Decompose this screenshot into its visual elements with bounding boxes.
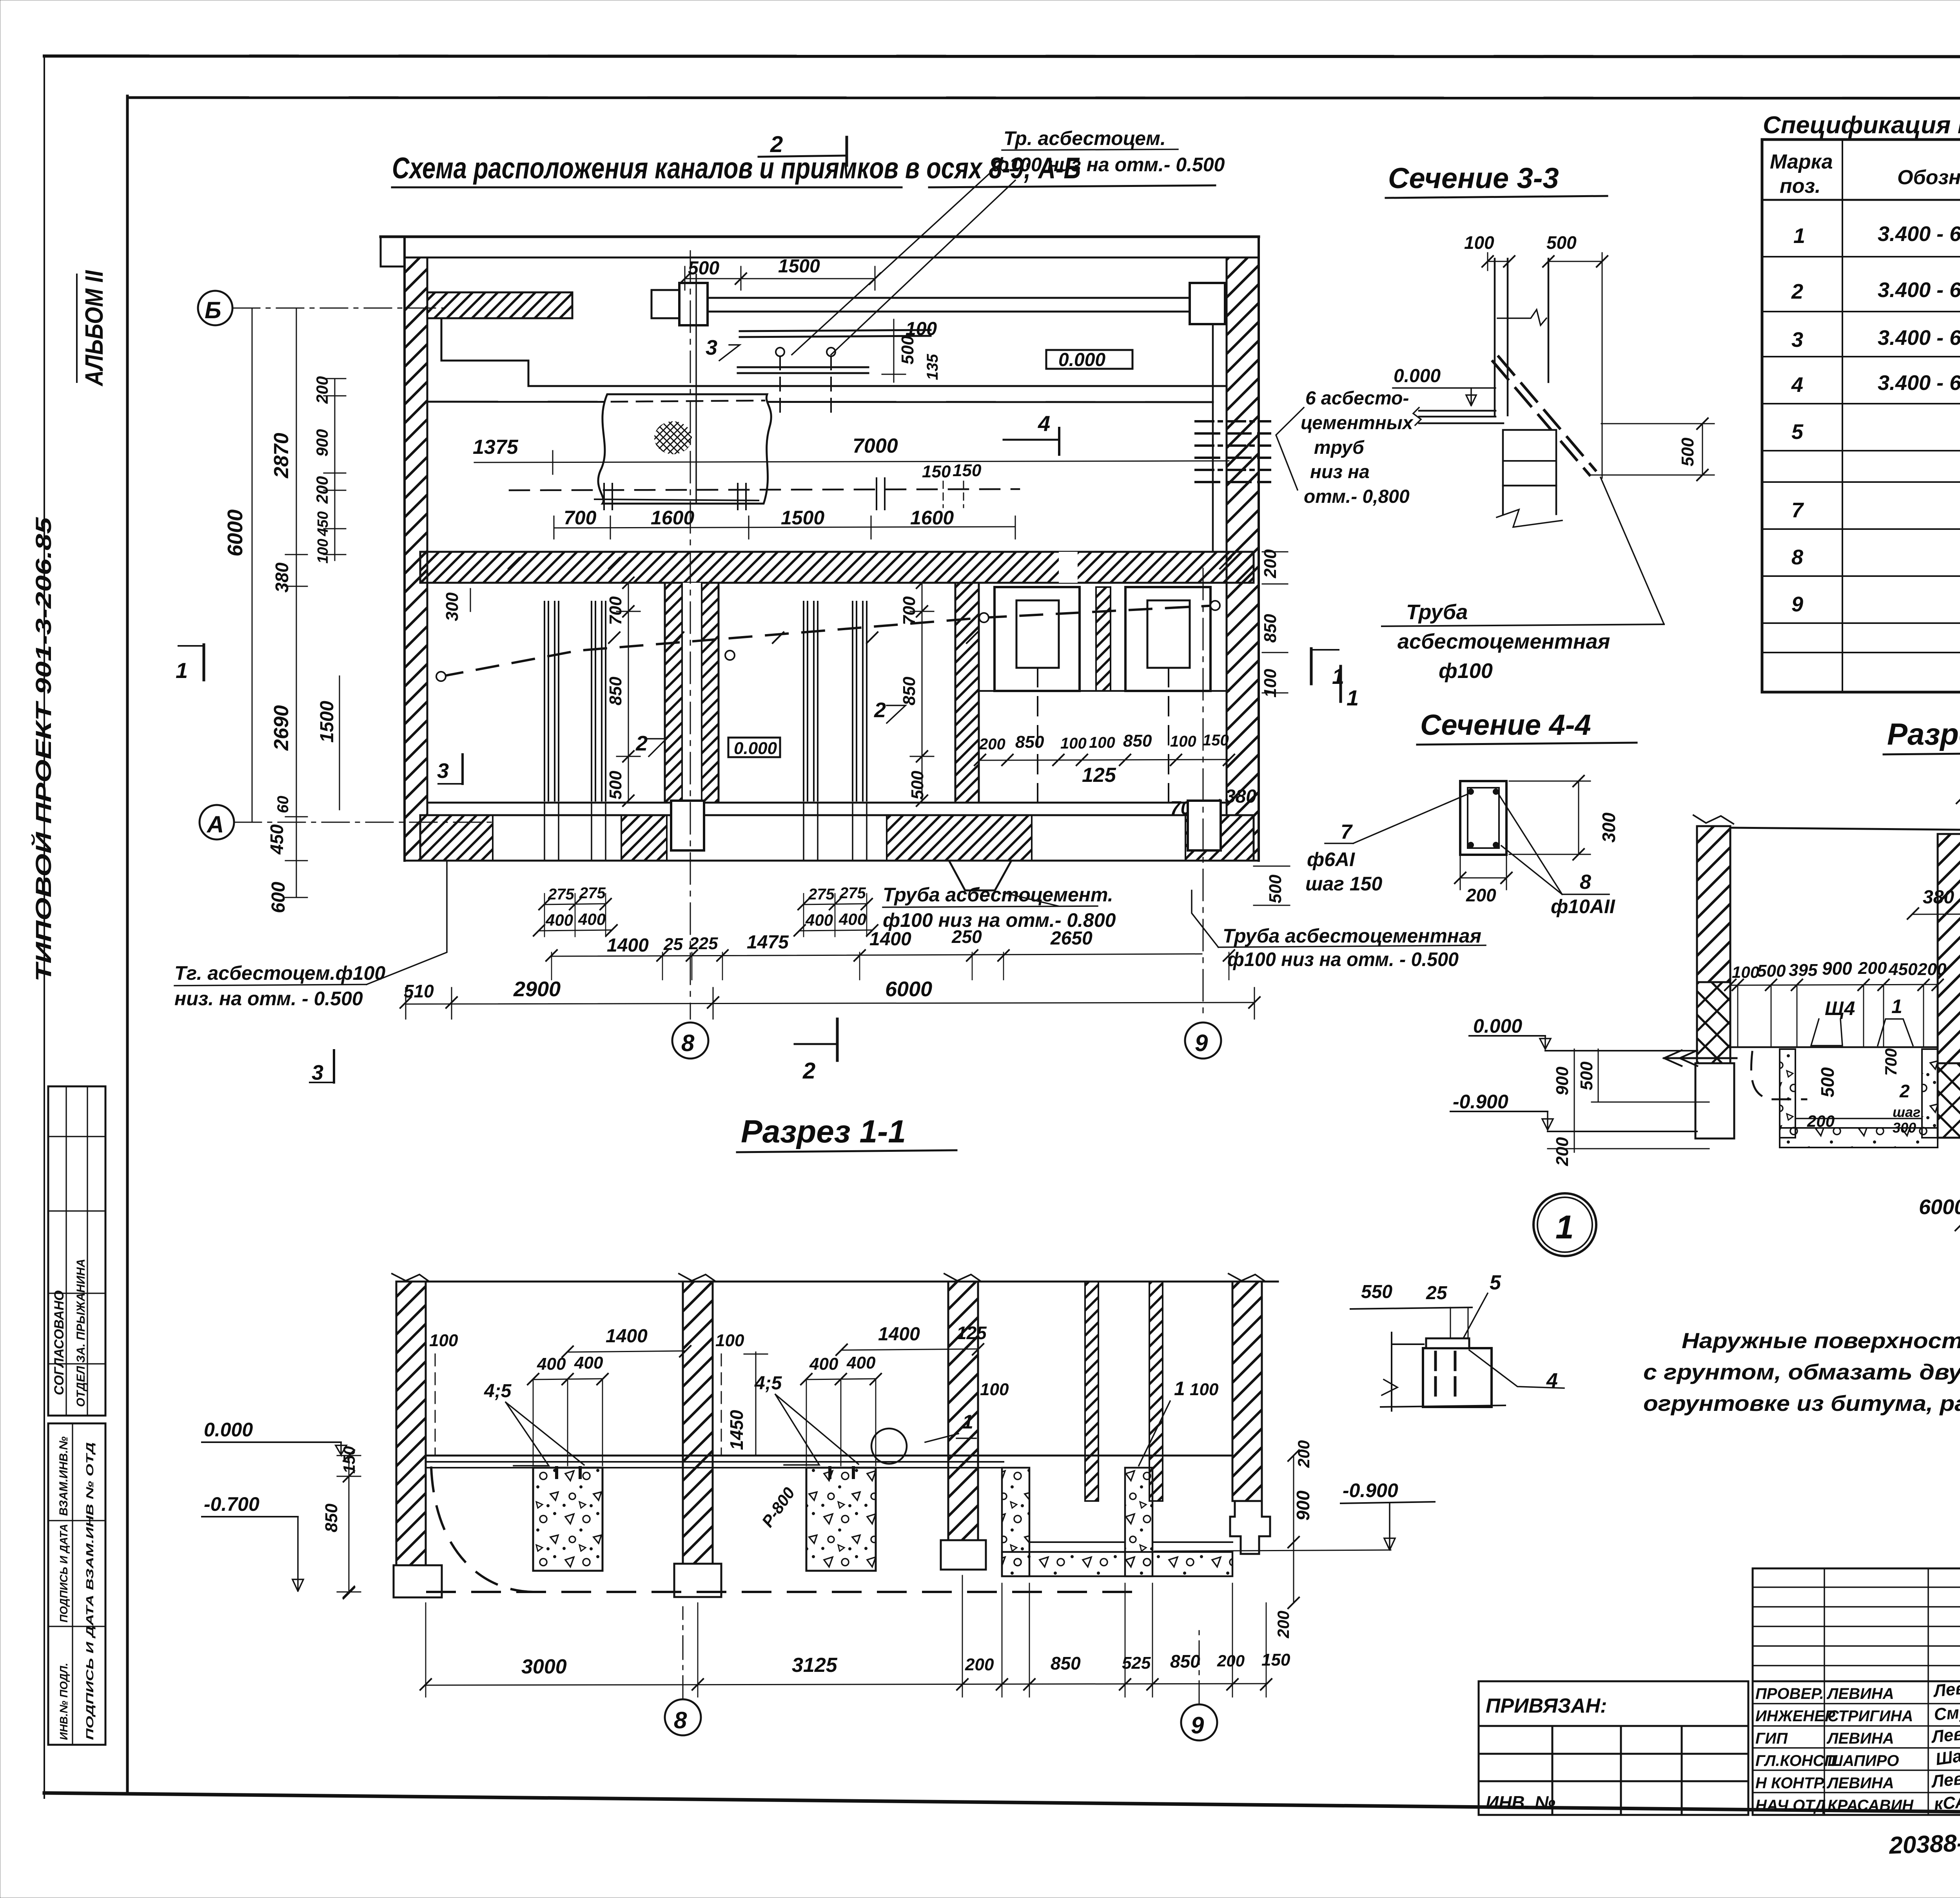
svg-text:200: 200 <box>1807 1112 1835 1130</box>
svg-text:1600: 1600 <box>910 507 954 529</box>
svg-text:200: 200 <box>1261 549 1280 578</box>
svg-text:2: 2 <box>770 132 783 157</box>
svg-text:ЛЕВИНА: ЛЕВИНА <box>1826 1730 1894 1747</box>
svg-text:Труба: Труба <box>1406 600 1468 624</box>
svg-text:200: 200 <box>1217 1651 1245 1670</box>
svg-text:1375: 1375 <box>473 436 519 459</box>
svg-text:150: 150 <box>953 461 982 480</box>
svg-text:200: 200 <box>313 476 331 504</box>
svg-text:3.400 - 6/76: 3.400 - 6/76 <box>1878 278 1960 302</box>
svg-text:ф100 низ на отм.- 0.800: ф100 низ на отм.- 0.800 <box>883 909 1116 931</box>
svg-text:1: 1 <box>962 1411 973 1433</box>
svg-text:6000: 6000 <box>223 509 247 557</box>
svg-text:7: 7 <box>1791 499 1804 522</box>
svg-text:-0.900: -0.900 <box>1453 1091 1508 1113</box>
svg-text:3.400 - 6/76: 3.400 - 6/76 <box>1878 371 1960 395</box>
svg-text:300: 300 <box>443 592 462 621</box>
svg-text:400: 400 <box>545 911 573 929</box>
svg-text:225: 225 <box>689 934 718 953</box>
svg-text:ОТДЕЛ ЗА. ПРЫЖАНИНА: ОТДЕЛ ЗА. ПРЫЖАНИНА <box>74 1259 87 1407</box>
svg-text:7000: 7000 <box>853 435 898 457</box>
svg-text:5: 5 <box>1490 1271 1501 1294</box>
svg-text:1500: 1500 <box>317 701 338 743</box>
svg-text:400: 400 <box>805 911 833 929</box>
svg-text:850: 850 <box>322 1503 341 1532</box>
svg-text:150: 150 <box>1261 1650 1290 1670</box>
svg-text:100: 100 <box>1170 733 1196 750</box>
svg-text:2690: 2690 <box>270 705 293 751</box>
svg-text:0.000: 0.000 <box>1394 366 1441 386</box>
svg-text:8: 8 <box>681 1030 695 1056</box>
svg-text:500: 500 <box>898 335 917 364</box>
svg-text:510: 510 <box>404 981 434 1001</box>
svg-text:5: 5 <box>1791 420 1804 444</box>
svg-text:огрунтовке из битума, раств: огрунтовке из битума, растворенного в бе… <box>1643 1391 1960 1416</box>
svg-text:380: 380 <box>272 562 292 593</box>
svg-text:ф10АII: ф10АII <box>1551 896 1615 917</box>
svg-text:400: 400 <box>846 1353 876 1372</box>
svg-text:1500: 1500 <box>781 507 824 529</box>
svg-text:500: 500 <box>606 770 625 799</box>
svg-text:Тр. асбестоцем.: Тр. асбестоцем. <box>1004 127 1166 149</box>
svg-text:900: 900 <box>1553 1066 1572 1095</box>
svg-text:ИНВ. №: ИНВ. № <box>1486 1792 1555 1813</box>
svg-text:0.000: 0.000 <box>1473 1015 1522 1037</box>
svg-text:850: 850 <box>1051 1653 1081 1673</box>
svg-text:3.400 - 6/76: 3.400 - 6/76 <box>1878 326 1960 350</box>
svg-text:ГЛ.КОНСП: ГЛ.КОНСП <box>1755 1752 1836 1769</box>
svg-text:20388-02: 20388-02 <box>1888 1829 1960 1859</box>
svg-text:700: 700 <box>900 596 919 625</box>
svg-text:0.000: 0.000 <box>204 1419 253 1441</box>
svg-text:100: 100 <box>429 1331 458 1350</box>
svg-text:Схема расположения каналов: Схема расположения каналов и приямков в … <box>392 152 1081 185</box>
svg-text:Сечение 4-4: Сечение 4-4 <box>1420 709 1591 741</box>
svg-text:1400: 1400 <box>869 929 911 950</box>
svg-text:1: 1 <box>176 658 188 683</box>
svg-text:с грунтом, обмазать двумя: с грунтом, обмазать двумя слоями горячег… <box>1643 1360 1960 1384</box>
svg-text:6 асбесто-: 6 асбесто- <box>1305 388 1409 409</box>
svg-text:ф100: ф100 <box>1439 659 1493 683</box>
svg-text:100: 100 <box>980 1380 1009 1399</box>
svg-text:отм.- 0,800: отм.- 0,800 <box>1304 486 1410 507</box>
svg-text:низ. на отм. - 0.500: низ. на отм. - 0.500 <box>174 988 363 1010</box>
svg-text:400: 400 <box>809 1354 838 1374</box>
svg-text:1: 1 <box>1891 995 1902 1017</box>
svg-text:2870: 2870 <box>270 433 293 479</box>
svg-text:850: 850 <box>900 676 919 705</box>
svg-text:150: 150 <box>1203 732 1229 749</box>
svg-text:-0.700: -0.700 <box>204 1493 260 1515</box>
svg-text:500: 500 <box>1577 1061 1596 1090</box>
svg-text:7: 7 <box>1341 821 1353 843</box>
svg-text:Спецификация к схеме расположе: Спецификация к схеме расположения приямк… <box>1763 112 1960 139</box>
svg-text:0.000: 0.000 <box>1058 350 1105 370</box>
svg-text:850: 850 <box>1261 614 1280 643</box>
svg-text:100: 100 <box>1190 1380 1219 1399</box>
svg-text:525: 525 <box>1122 1653 1151 1673</box>
svg-text:200: 200 <box>979 736 1005 753</box>
svg-text:9: 9 <box>1195 1030 1208 1056</box>
svg-text:Тг. асбестоцем.ф100: Тг. асбестоцем.ф100 <box>174 962 385 984</box>
svg-text:ф100 низ на отм. - 0.500: ф100 низ на отм. - 0.500 <box>1227 948 1459 970</box>
svg-text:ПОДПИСЬ И ДАТА: ПОДПИСЬ И ДАТА <box>58 1524 70 1622</box>
svg-text:Обозначение: Обозначение <box>1897 166 1960 189</box>
svg-text:кСАв: кСАв <box>1933 1791 1960 1814</box>
svg-text:500: 500 <box>1266 874 1285 903</box>
svg-text:400: 400 <box>838 910 866 928</box>
svg-text:цементных: цементных <box>1301 413 1414 433</box>
svg-text:СТРИГИНА: СТРИГИНА <box>1828 1708 1913 1725</box>
svg-text:850: 850 <box>1170 1651 1200 1671</box>
svg-text:3: 3 <box>706 336 717 359</box>
svg-text:ф100 низ на отм.- 0.500: ф100 низ на отм.- 0.500 <box>992 154 1225 176</box>
svg-text:2: 2 <box>1791 280 1803 303</box>
svg-text:Марка: Марка <box>1770 150 1833 173</box>
svg-text:ПРИВЯЗАН:: ПРИВЯЗАН: <box>1486 1695 1607 1717</box>
svg-text:ПРОВЕР.: ПРОВЕР. <box>1755 1685 1824 1702</box>
svg-text:100: 100 <box>1089 734 1115 751</box>
svg-text:850: 850 <box>606 676 625 705</box>
svg-text:Н КОНТР.: Н КОНТР. <box>1755 1775 1826 1792</box>
svg-text:НАЧ.ОТД: НАЧ.ОТД <box>1755 1797 1826 1814</box>
svg-text:низ на: низ на <box>1310 462 1370 482</box>
svg-text:ВЗАМ.ИНВ.№: ВЗАМ.ИНВ.№ <box>57 1436 70 1516</box>
svg-text:1: 1 <box>1174 1378 1185 1399</box>
svg-text:900: 900 <box>313 429 331 457</box>
svg-text:ШАПИРО: ШАПИРО <box>1828 1752 1899 1769</box>
svg-text:1400: 1400 <box>878 1324 920 1345</box>
svg-text:9: 9 <box>1191 1712 1204 1738</box>
svg-text:ИНВ.№ ПОДЛ.: ИНВ.№ ПОДЛ. <box>58 1663 70 1740</box>
svg-text:500: 500 <box>1678 437 1697 466</box>
svg-text:1: 1 <box>1555 1209 1574 1245</box>
svg-text:395: 395 <box>1789 961 1818 980</box>
svg-text:3.400 - 6/76: 3.400 - 6/76 <box>1878 222 1960 246</box>
svg-text:100: 100 <box>1060 735 1087 752</box>
svg-text:1600: 1600 <box>651 507 694 529</box>
svg-text:Труба асбестоцементная: Труба асбестоцементная <box>1223 925 1481 947</box>
svg-text:450: 450 <box>315 511 331 537</box>
svg-text:200: 200 <box>1294 1440 1313 1468</box>
svg-text:2900: 2900 <box>513 977 561 1001</box>
svg-text:ТИПОВОЙ ПРОЕКТ 901-3-206.85: ТИПОВОЙ ПРОЕКТ 901-3-206.85 <box>31 517 56 982</box>
svg-text:550: 550 <box>1361 1282 1392 1302</box>
svg-text:8: 8 <box>1580 871 1591 894</box>
svg-text:асбестоцементная: асбестоцементная <box>1397 630 1610 653</box>
svg-text:2: 2 <box>1899 1081 1910 1101</box>
svg-text:850: 850 <box>1123 731 1152 750</box>
svg-text:4: 4 <box>1791 373 1803 397</box>
svg-text:шаг: шаг <box>1893 1104 1920 1120</box>
svg-text:380: 380 <box>1225 786 1256 807</box>
svg-text:200: 200 <box>313 376 331 404</box>
svg-text:ЛЕВИНА: ЛЕВИНА <box>1826 1775 1894 1792</box>
svg-text:500: 500 <box>1757 961 1786 981</box>
svg-text:100: 100 <box>315 539 331 564</box>
svg-text:400: 400 <box>578 910 606 928</box>
svg-text:200: 200 <box>1274 1611 1292 1639</box>
svg-text:1475: 1475 <box>747 932 789 953</box>
svg-text:200: 200 <box>1917 960 1947 979</box>
svg-text:1: 1 <box>1347 685 1359 710</box>
svg-text:ГИП: ГИП <box>1755 1730 1788 1747</box>
svg-text:4: 4 <box>1546 1369 1558 1392</box>
svg-text:3: 3 <box>1791 328 1803 352</box>
svg-text:ф6АI: ф6АI <box>1307 848 1355 870</box>
svg-text:Наружные поверхности приямк: Наружные поверхности приямков, соприкаса… <box>1682 1328 1960 1353</box>
svg-text:3125: 3125 <box>792 1654 838 1677</box>
svg-text:1500: 1500 <box>778 256 820 277</box>
svg-text:2: 2 <box>635 732 648 755</box>
svg-text:6000: 6000 <box>1919 1195 1960 1219</box>
svg-text:Сечение 3-3: Сечение 3-3 <box>1388 162 1559 194</box>
svg-text:100: 100 <box>715 1331 744 1350</box>
svg-text:125: 125 <box>1082 764 1116 787</box>
svg-text:1400: 1400 <box>607 935 649 956</box>
svg-text:СОГЛАСОВАНО: СОГЛАСОВАНО <box>52 1291 67 1395</box>
svg-text:-0.900: -0.900 <box>1343 1479 1398 1501</box>
svg-text:450: 450 <box>267 824 287 855</box>
svg-text:0.000: 0.000 <box>734 739 777 758</box>
svg-text:275: 275 <box>548 886 574 903</box>
svg-text:300: 300 <box>1599 812 1619 843</box>
svg-text:60: 60 <box>274 796 292 814</box>
svg-text:АЛЬБОМ II: АЛЬБОМ II <box>80 270 108 387</box>
svg-text:300: 300 <box>1893 1120 1916 1136</box>
svg-text:125: 125 <box>956 1323 987 1343</box>
svg-text:900: 900 <box>1293 1490 1313 1521</box>
svg-text:8: 8 <box>674 1707 687 1733</box>
svg-text:275: 275 <box>839 885 866 902</box>
svg-text:труб: труб <box>1314 437 1365 458</box>
svg-text:Щ4: Щ4 <box>1825 997 1855 1019</box>
svg-text:400: 400 <box>574 1353 603 1372</box>
svg-text:ЛЕВИНА: ЛЕВИНА <box>1826 1685 1894 1702</box>
svg-text:шаг 150: шаг 150 <box>1305 873 1382 895</box>
svg-text:700: 700 <box>1882 1048 1900 1076</box>
svg-text:25: 25 <box>1426 1283 1448 1303</box>
svg-text:200: 200 <box>1858 959 1887 978</box>
svg-text:500: 500 <box>688 258 719 279</box>
svg-text:150: 150 <box>922 462 951 481</box>
svg-text:1450: 1450 <box>726 1410 747 1450</box>
svg-text:700: 700 <box>606 596 625 625</box>
svg-text:1: 1 <box>1793 224 1805 248</box>
svg-text:2: 2 <box>874 698 886 722</box>
svg-text:200: 200 <box>965 1655 994 1674</box>
svg-text:ПОДПИСЬ И ДАТА ВЗАМ.ИНВ № ОТД: ПОДПИСЬ И ДАТА ВЗАМ.ИНВ № ОТД <box>84 1442 96 1740</box>
svg-text:1400: 1400 <box>606 1326 648 1347</box>
svg-text:500: 500 <box>1817 1067 1838 1097</box>
svg-text:Разрез 2-2: Разрез 2-2 <box>1887 717 1960 751</box>
svg-text:А: А <box>206 811 224 838</box>
svg-text:380: 380 <box>1923 887 1954 908</box>
svg-text:3000: 3000 <box>521 1655 567 1678</box>
svg-text:500: 500 <box>908 770 927 799</box>
svg-text:КРАСАВИН: КРАСАВИН <box>1828 1797 1914 1814</box>
svg-text:ИНЖЕНЕР: ИНЖЕНЕР <box>1755 1708 1835 1725</box>
svg-text:450: 450 <box>1888 960 1918 979</box>
svg-text:700: 700 <box>564 507 597 529</box>
svg-text:Труба асбестоцемент.: Труба асбестоцемент. <box>883 884 1113 906</box>
svg-text:275: 275 <box>579 885 606 902</box>
svg-text:2: 2 <box>802 1058 815 1084</box>
svg-text:135: 135 <box>924 354 941 380</box>
svg-text:3: 3 <box>312 1061 323 1084</box>
svg-text:9: 9 <box>1791 593 1803 616</box>
svg-text:4;5: 4;5 <box>754 1373 782 1394</box>
svg-text:6000: 6000 <box>885 977 932 1001</box>
svg-text:Разрез 1-1: Разрез 1-1 <box>741 1114 906 1149</box>
svg-text:500: 500 <box>1546 232 1577 253</box>
svg-text:4;5: 4;5 <box>484 1381 512 1401</box>
svg-text:850: 850 <box>1015 732 1044 752</box>
svg-text:200: 200 <box>1466 885 1496 905</box>
svg-text:200: 200 <box>1553 1137 1572 1166</box>
svg-text:1: 1 <box>1332 664 1344 689</box>
svg-text:4: 4 <box>1038 411 1050 436</box>
svg-text:100: 100 <box>1464 232 1494 253</box>
svg-text:Б: Б <box>205 297 221 323</box>
svg-text:3: 3 <box>437 759 449 783</box>
svg-text:8: 8 <box>1791 546 1803 569</box>
svg-text:900: 900 <box>1822 958 1852 979</box>
svg-text:275: 275 <box>808 886 835 903</box>
svg-text:поз.: поз. <box>1780 175 1821 198</box>
